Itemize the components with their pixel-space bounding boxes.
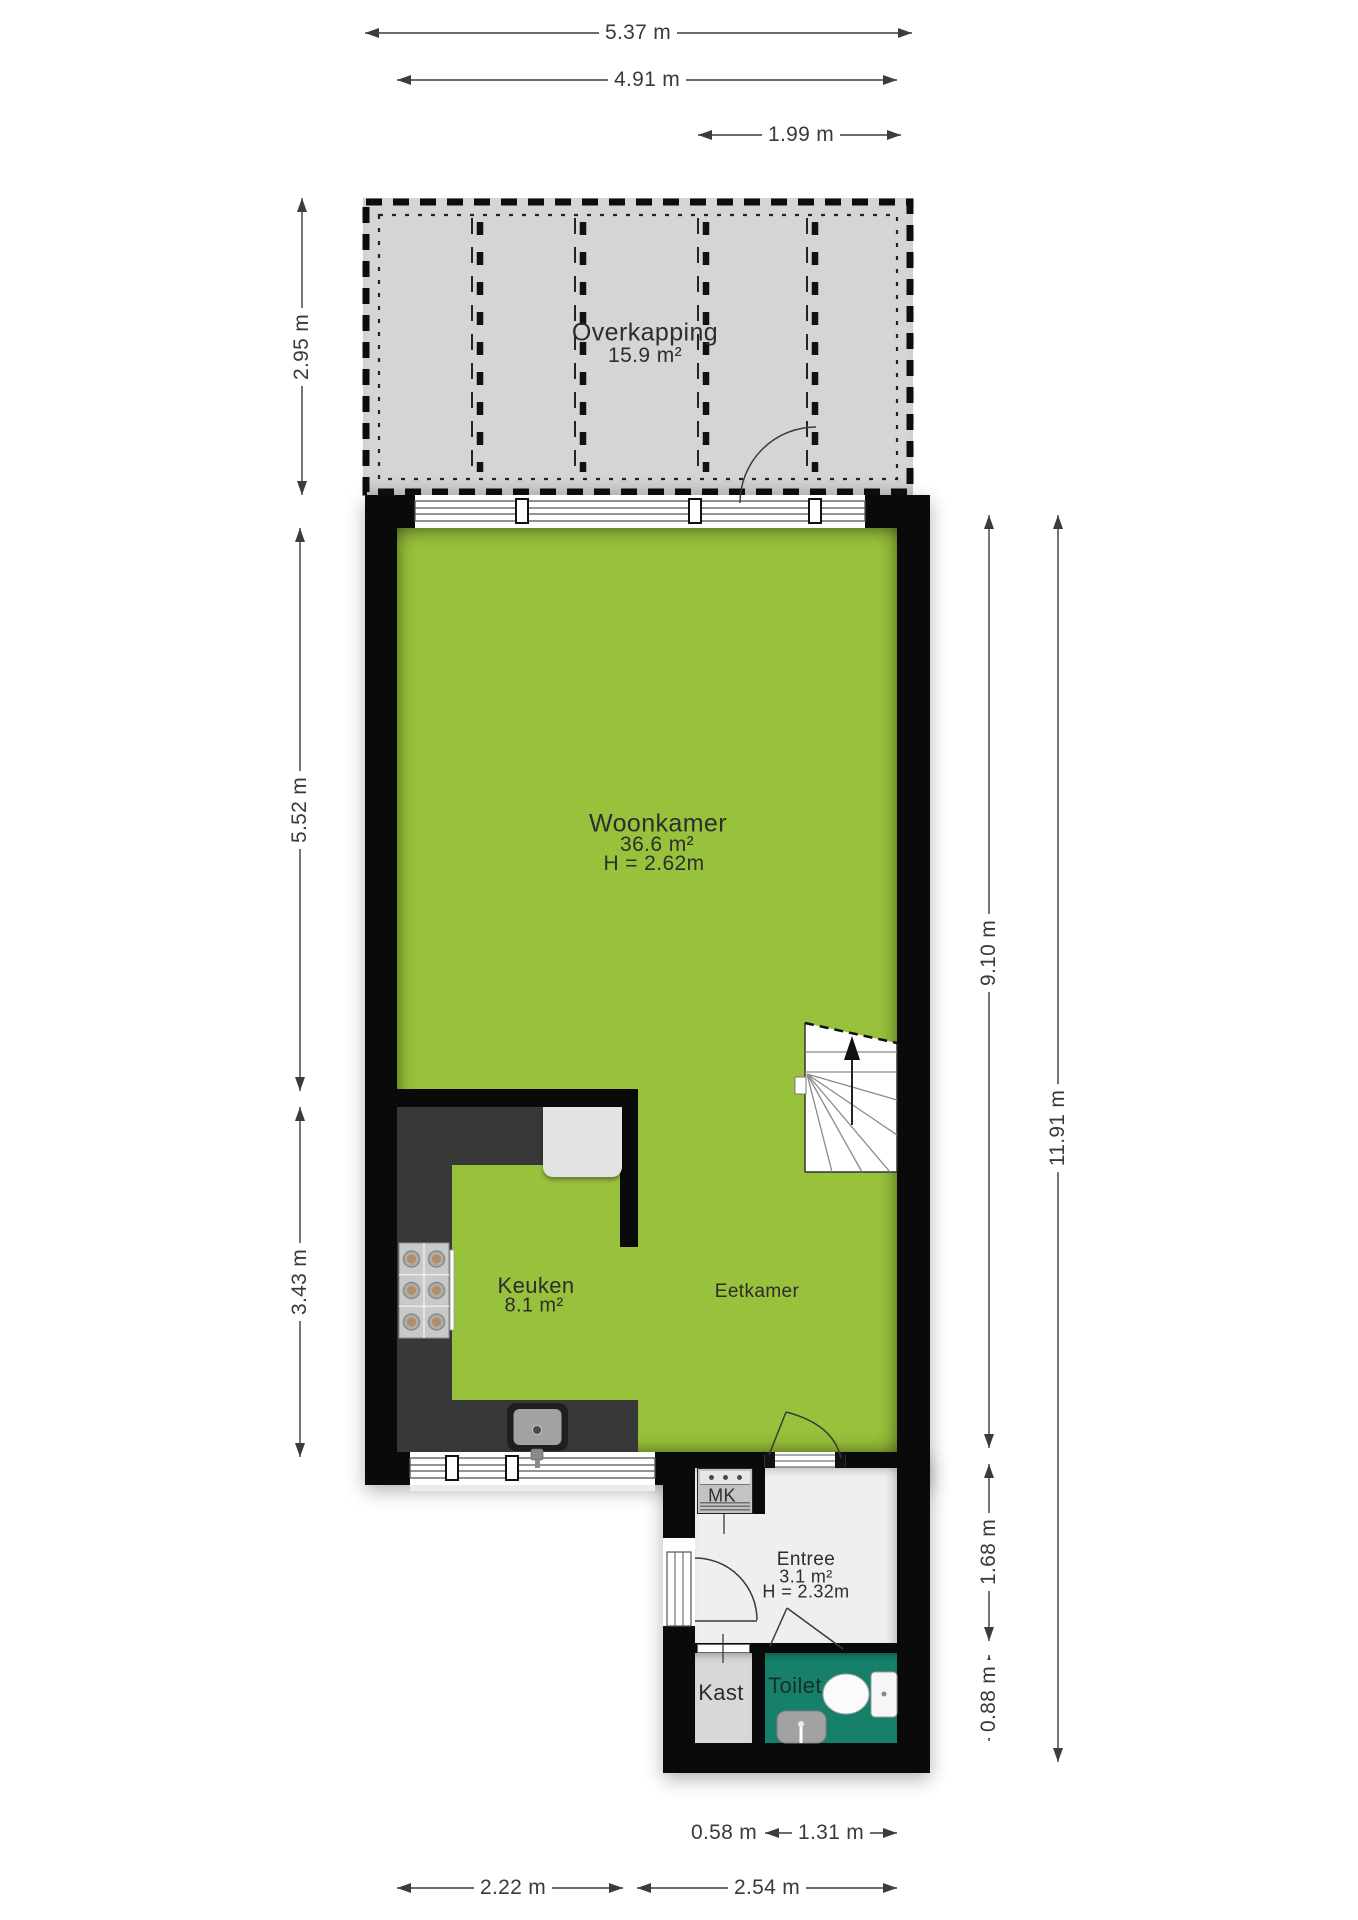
dim-top-door: 1.99 m: [762, 123, 840, 147]
front-door: [667, 1552, 757, 1626]
livingroom-entree-door: [765, 1412, 845, 1468]
plan-linework: [0, 0, 1358, 1920]
room-label-eetkamer: Eetkamer: [715, 1281, 800, 1303]
dim-left-woonkamer: 5.52 m: [288, 771, 312, 849]
rear-window-band: [415, 495, 865, 528]
dim-bottom-toilet: 1.31 m: [792, 1821, 870, 1845]
toilet-door: [770, 1608, 843, 1649]
room-height-entree: H = 2.32m: [762, 1582, 849, 1603]
dim-bottom-right: 2.54 m: [728, 1876, 806, 1900]
room-label-kast: Kast: [698, 1680, 744, 1706]
stove: [399, 1243, 454, 1338]
dim-top-inner: 4.91 m: [608, 68, 686, 92]
toilet-bowl: [823, 1672, 897, 1717]
room-label-toilet: Toilet: [768, 1673, 822, 1699]
room-label-mk: MK: [708, 1486, 736, 1507]
staircase: [795, 1023, 897, 1172]
door-swing-overkapping: [740, 427, 816, 503]
room-area-overkapping: 15.9 m²: [608, 344, 682, 368]
dim-bottom-left: 2.22 m: [474, 1876, 552, 1900]
dim-bottom-kast: 0.58 m: [685, 1821, 763, 1845]
hand-basin: [777, 1711, 826, 1743]
dim-right-entree: 1.68 m: [977, 1513, 1001, 1591]
floor-plan: Overkapping 15.9 m² Woonkamer 36.6 m² H …: [0, 0, 1358, 1920]
dim-left-overkapping: 2.95 m: [290, 308, 314, 386]
dim-right-toilet: 0.88 m: [977, 1660, 1001, 1738]
room-area-keuken: 8.1 m²: [504, 1295, 563, 1318]
room-height-woonkamer: H = 2.62m: [603, 852, 704, 876]
dim-right-total: 11.91 m: [1046, 1084, 1070, 1172]
dim-left-keuken: 3.43 m: [288, 1243, 312, 1321]
dim-top-total: 5.37 m: [599, 21, 677, 45]
dim-right-main: 9.10 m: [977, 914, 1001, 992]
